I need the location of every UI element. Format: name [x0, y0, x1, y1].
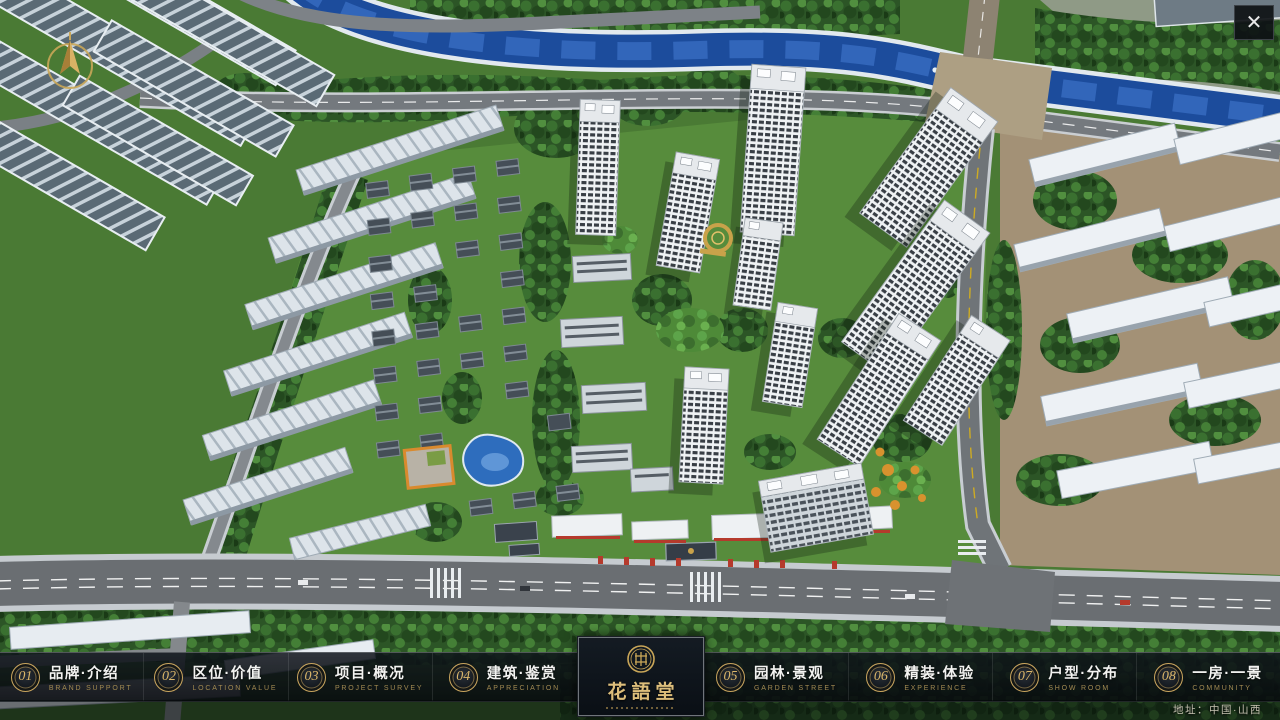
nav-group-left: 01 品牌·介绍 BRAND SUPPORT 02 区位·价值 LOCATION…: [0, 653, 576, 701]
nav-sublabel: LOCATION VALUE: [192, 685, 277, 692]
nav-item-interior-experience[interactable]: 06 精装·体验 EXPERIENCE: [848, 653, 992, 701]
nav-label: 品牌·介绍: [49, 662, 119, 683]
aerial-masterplan-render[interactable]: [0, 0, 1280, 720]
nav-label: 项目·概况: [335, 662, 405, 683]
nav-label: 区位·价值: [192, 662, 262, 683]
nav-item-project-survey[interactable]: 03 项目·概况 PROJECT SURVEY: [288, 653, 432, 701]
nav-sublabel: GARDEN STREET: [754, 685, 837, 692]
nav-item-location-value[interactable]: 02 区位·价值 LOCATION VALUE: [143, 653, 287, 701]
nav-item-architecture[interactable]: 04 建筑·鉴赏 APPRECIATION: [432, 653, 576, 701]
nav-number-badge: 08: [1154, 663, 1183, 692]
nav-number-badge: 05: [716, 663, 745, 692]
project-logo-panel[interactable]: 花語堂: [578, 637, 704, 716]
project-name: 花語堂: [602, 677, 679, 704]
nav-number-badge: 04: [449, 663, 478, 692]
close-icon: ✕: [1246, 13, 1263, 33]
nav-sublabel: APPRECIATION: [487, 685, 560, 692]
pond: [463, 435, 523, 486]
logo-subtext-decor: [606, 707, 676, 709]
nav-number-badge: 01: [11, 663, 40, 692]
nav-label: 一房·一景: [1192, 662, 1262, 683]
compass-icon: [36, 28, 104, 96]
nav-item-room-view[interactable]: 08 一房·一景 COMMUNITY: [1136, 653, 1280, 701]
nav-label: 户型·分布: [1048, 662, 1118, 683]
nav-number-badge: 02: [154, 663, 183, 692]
nav-item-garden-landscape[interactable]: 05 园林·景观 GARDEN STREET: [704, 653, 848, 701]
nav-item-unit-distribution[interactable]: 07 户型·分布 SHOW ROOM: [992, 653, 1136, 701]
nav-number-badge: 06: [866, 663, 895, 692]
nav-sublabel: BRAND SUPPORT: [49, 685, 133, 692]
close-button[interactable]: ✕: [1234, 5, 1274, 40]
nav-number-badge: 03: [297, 663, 326, 692]
logo-seal-icon: [626, 644, 656, 674]
nav-label: 精装·体验: [904, 662, 974, 683]
nav-label: 建筑·鉴赏: [487, 662, 557, 683]
nav-sublabel: EXPERIENCE: [904, 685, 967, 692]
nav-item-brand-intro[interactable]: 01 品牌·介绍 BRAND SUPPORT: [0, 653, 143, 701]
address-text: 地址：中国·山西: [1173, 702, 1262, 717]
sales-presentation-screen: ✕ 01 品牌·介绍 BRAND SUPPORT 02 区位·价值 LOCATI…: [0, 0, 1280, 720]
nav-label: 园林·景观: [754, 662, 824, 683]
nav-sublabel: COMMUNITY: [1192, 685, 1251, 692]
nav-group-right: 05 园林·景观 GARDEN STREET 06 精装·体验 EXPERIEN…: [704, 653, 1280, 701]
nav-sublabel: SHOW ROOM: [1048, 685, 1110, 692]
nav-number-badge: 07: [1010, 663, 1039, 692]
nav-sublabel: PROJECT SURVEY: [335, 685, 423, 692]
